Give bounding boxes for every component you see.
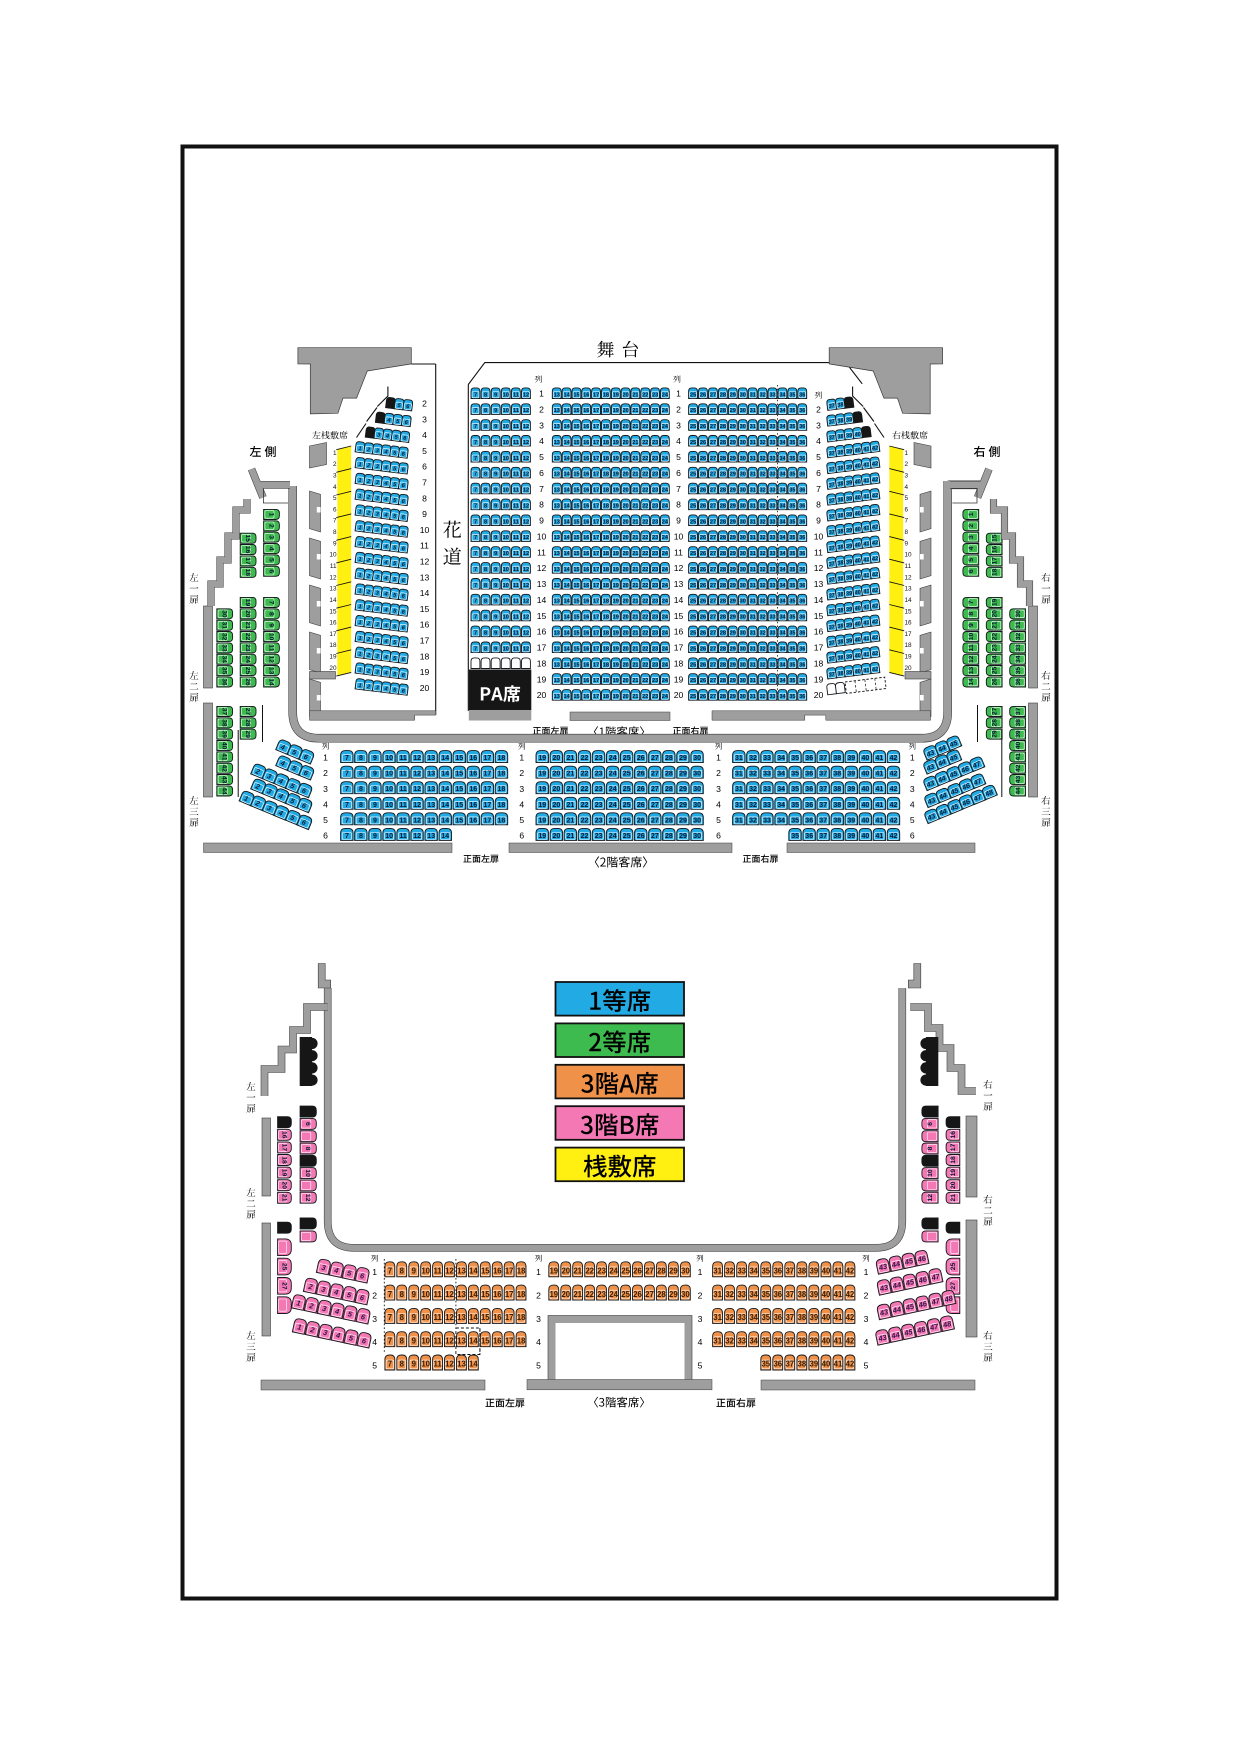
svg-text:20: 20 bbox=[622, 392, 628, 398]
svg-text:24: 24 bbox=[662, 631, 669, 637]
svg-text:17: 17 bbox=[905, 631, 913, 638]
svg-text:21: 21 bbox=[632, 408, 638, 414]
svg-text:25: 25 bbox=[690, 678, 696, 684]
svg-text:13: 13 bbox=[457, 1336, 466, 1345]
svg-text:30: 30 bbox=[740, 567, 746, 573]
svg-text:32: 32 bbox=[759, 678, 765, 684]
svg-text:34: 34 bbox=[779, 646, 786, 652]
svg-text:17: 17 bbox=[950, 1143, 957, 1151]
svg-text:12: 12 bbox=[420, 557, 430, 567]
svg-text:18: 18 bbox=[674, 659, 684, 669]
svg-text:37: 37 bbox=[785, 1336, 794, 1345]
svg-text:35: 35 bbox=[789, 631, 795, 637]
svg-text:9: 9 bbox=[412, 1313, 417, 1322]
svg-text:26: 26 bbox=[700, 408, 706, 414]
svg-text:41: 41 bbox=[876, 833, 884, 840]
svg-text:14: 14 bbox=[420, 588, 430, 598]
svg-text:16: 16 bbox=[583, 535, 589, 541]
svg-text:30: 30 bbox=[693, 755, 701, 762]
svg-text:22: 22 bbox=[585, 1290, 594, 1299]
svg-text:23: 23 bbox=[652, 567, 658, 573]
svg-text:28: 28 bbox=[720, 583, 726, 589]
svg-text:11: 11 bbox=[513, 488, 519, 494]
svg-text:37: 37 bbox=[785, 1313, 794, 1322]
svg-text:22: 22 bbox=[642, 567, 648, 573]
svg-text:29: 29 bbox=[991, 730, 998, 738]
svg-text:10: 10 bbox=[503, 551, 509, 557]
svg-text:22: 22 bbox=[244, 633, 251, 641]
svg-text:11: 11 bbox=[433, 1360, 442, 1369]
svg-text:27: 27 bbox=[710, 488, 716, 494]
svg-text:36: 36 bbox=[799, 535, 805, 541]
svg-text:13: 13 bbox=[457, 1313, 466, 1322]
svg-text:34: 34 bbox=[749, 1336, 758, 1345]
svg-text:13: 13 bbox=[674, 579, 684, 589]
svg-text:30: 30 bbox=[740, 519, 746, 525]
svg-text:26: 26 bbox=[700, 583, 706, 589]
svg-text:31: 31 bbox=[735, 771, 743, 778]
svg-text:11: 11 bbox=[513, 567, 519, 573]
svg-text:14: 14 bbox=[441, 817, 449, 824]
svg-text:5: 5 bbox=[905, 495, 909, 502]
svg-text:34: 34 bbox=[779, 408, 786, 414]
svg-text:19: 19 bbox=[538, 817, 546, 824]
svg-text:33: 33 bbox=[769, 583, 775, 589]
svg-text:31: 31 bbox=[750, 408, 756, 414]
svg-text:40: 40 bbox=[1015, 742, 1022, 750]
svg-text:26: 26 bbox=[633, 1267, 642, 1276]
svg-text:29: 29 bbox=[679, 817, 687, 824]
svg-text:3: 3 bbox=[905, 472, 909, 479]
svg-text:27: 27 bbox=[651, 771, 659, 778]
svg-text:7: 7 bbox=[345, 755, 349, 762]
svg-text:25: 25 bbox=[690, 551, 696, 557]
svg-text:36: 36 bbox=[799, 646, 805, 652]
svg-text:20: 20 bbox=[561, 1267, 570, 1276]
svg-text:26: 26 bbox=[637, 786, 645, 793]
svg-text:41: 41 bbox=[834, 1290, 843, 1299]
svg-text:28: 28 bbox=[720, 646, 726, 652]
svg-text:24: 24 bbox=[662, 472, 669, 478]
svg-text:27: 27 bbox=[710, 440, 716, 446]
svg-text:30: 30 bbox=[681, 1290, 690, 1299]
svg-text:36: 36 bbox=[805, 817, 813, 824]
svg-text:11: 11 bbox=[814, 547, 823, 557]
svg-text:12: 12 bbox=[537, 563, 547, 573]
svg-text:19: 19 bbox=[329, 654, 337, 661]
svg-text:11: 11 bbox=[399, 802, 407, 809]
svg-text:24: 24 bbox=[609, 802, 617, 809]
svg-text:35: 35 bbox=[789, 504, 795, 510]
svg-text:43: 43 bbox=[221, 776, 228, 784]
svg-text:16: 16 bbox=[583, 456, 589, 462]
svg-text:15: 15 bbox=[814, 611, 824, 621]
svg-text:34: 34 bbox=[1015, 655, 1022, 663]
svg-text:35: 35 bbox=[789, 472, 795, 478]
svg-text:17: 17 bbox=[593, 551, 599, 557]
svg-text:19: 19 bbox=[613, 599, 619, 605]
svg-text:25: 25 bbox=[690, 535, 696, 541]
svg-text:22: 22 bbox=[642, 456, 648, 462]
svg-text:9: 9 bbox=[412, 1267, 417, 1276]
svg-text:18: 18 bbox=[603, 440, 609, 446]
svg-text:14: 14 bbox=[469, 1267, 478, 1276]
svg-text:2: 2 bbox=[519, 768, 524, 778]
svg-text:15: 15 bbox=[481, 1290, 490, 1299]
svg-text:7: 7 bbox=[474, 519, 477, 525]
svg-text:28: 28 bbox=[665, 786, 673, 793]
svg-text:13: 13 bbox=[554, 504, 560, 510]
svg-text:18: 18 bbox=[420, 651, 430, 661]
svg-text:27: 27 bbox=[645, 1290, 654, 1299]
svg-text:2: 2 bbox=[968, 524, 975, 528]
svg-text:24: 24 bbox=[609, 755, 617, 762]
svg-text:8: 8 bbox=[968, 612, 975, 616]
svg-text:20: 20 bbox=[622, 694, 628, 700]
svg-text:37: 37 bbox=[785, 1360, 794, 1369]
svg-text:23: 23 bbox=[652, 551, 658, 557]
svg-text:12: 12 bbox=[523, 504, 529, 510]
svg-text:42: 42 bbox=[890, 802, 898, 809]
svg-text:20: 20 bbox=[622, 615, 628, 621]
svg-text:11: 11 bbox=[420, 541, 429, 551]
svg-text:18: 18 bbox=[517, 1336, 526, 1345]
svg-text:39: 39 bbox=[810, 1290, 819, 1299]
svg-text:36: 36 bbox=[799, 408, 805, 414]
svg-text:15: 15 bbox=[573, 472, 579, 478]
svg-text:32: 32 bbox=[759, 599, 765, 605]
svg-text:18: 18 bbox=[814, 659, 824, 669]
svg-text:30: 30 bbox=[740, 392, 746, 398]
svg-text:1: 1 bbox=[333, 450, 337, 457]
svg-text:30: 30 bbox=[740, 504, 746, 510]
svg-text:16: 16 bbox=[280, 1131, 287, 1139]
svg-text:28: 28 bbox=[665, 817, 673, 824]
svg-text:33: 33 bbox=[769, 678, 775, 684]
svg-text:35: 35 bbox=[791, 771, 799, 778]
svg-text:9: 9 bbox=[494, 519, 497, 525]
svg-text:44: 44 bbox=[221, 787, 228, 795]
svg-text:14: 14 bbox=[563, 631, 570, 637]
svg-text:38: 38 bbox=[798, 1290, 807, 1299]
svg-text:16: 16 bbox=[583, 678, 589, 684]
svg-text:2: 2 bbox=[422, 399, 427, 409]
svg-text:14: 14 bbox=[563, 504, 570, 510]
svg-text:10: 10 bbox=[503, 615, 509, 621]
svg-text:16: 16 bbox=[905, 620, 913, 627]
svg-text:6: 6 bbox=[676, 468, 681, 478]
svg-text:13: 13 bbox=[554, 408, 560, 414]
svg-text:33: 33 bbox=[763, 817, 771, 824]
svg-text:31: 31 bbox=[750, 678, 756, 684]
svg-text:25: 25 bbox=[690, 519, 696, 525]
svg-text:15: 15 bbox=[991, 534, 998, 542]
svg-text:21: 21 bbox=[632, 583, 638, 589]
svg-text:39: 39 bbox=[810, 1267, 819, 1276]
svg-text:14: 14 bbox=[674, 595, 684, 605]
svg-text:28: 28 bbox=[720, 472, 726, 478]
svg-text:18: 18 bbox=[537, 659, 547, 669]
svg-text:30: 30 bbox=[693, 771, 701, 778]
svg-text:22: 22 bbox=[581, 786, 589, 793]
svg-text:16: 16 bbox=[244, 546, 251, 554]
svg-text:17: 17 bbox=[593, 646, 599, 652]
svg-text:9: 9 bbox=[494, 631, 497, 637]
svg-text:36: 36 bbox=[805, 786, 813, 793]
svg-text:35: 35 bbox=[761, 1290, 770, 1299]
svg-text:14: 14 bbox=[563, 472, 570, 478]
svg-text:40: 40 bbox=[862, 786, 870, 793]
svg-text:13: 13 bbox=[554, 488, 560, 494]
svg-text:12: 12 bbox=[413, 786, 421, 793]
svg-text:41: 41 bbox=[862, 478, 870, 485]
svg-text:40: 40 bbox=[862, 817, 870, 824]
svg-text:30: 30 bbox=[740, 678, 746, 684]
svg-text:29: 29 bbox=[730, 488, 736, 494]
svg-text:28: 28 bbox=[720, 599, 726, 605]
svg-text:24: 24 bbox=[662, 567, 669, 573]
svg-text:8: 8 bbox=[359, 771, 363, 778]
svg-text:15: 15 bbox=[481, 1313, 490, 1322]
svg-text:17: 17 bbox=[593, 694, 599, 700]
svg-text:18: 18 bbox=[603, 631, 609, 637]
svg-text:7: 7 bbox=[345, 833, 349, 840]
svg-text:8: 8 bbox=[359, 755, 363, 762]
svg-text:4: 4 bbox=[372, 1337, 377, 1347]
svg-text:31: 31 bbox=[750, 615, 756, 621]
svg-text:24: 24 bbox=[662, 551, 669, 557]
svg-text:29: 29 bbox=[244, 730, 251, 738]
svg-text:13: 13 bbox=[554, 646, 560, 652]
svg-text:19: 19 bbox=[613, 646, 619, 652]
svg-text:16: 16 bbox=[493, 1290, 502, 1299]
svg-text:15: 15 bbox=[573, 440, 579, 446]
svg-text:30: 30 bbox=[740, 488, 746, 494]
svg-text:19: 19 bbox=[613, 519, 619, 525]
svg-text:9: 9 bbox=[968, 623, 975, 627]
svg-text:17: 17 bbox=[505, 1313, 514, 1322]
svg-text:8: 8 bbox=[267, 612, 274, 616]
svg-text:8: 8 bbox=[484, 504, 487, 510]
svg-text:17: 17 bbox=[593, 662, 599, 668]
svg-text:12: 12 bbox=[905, 574, 913, 581]
svg-text:25: 25 bbox=[690, 456, 696, 462]
svg-text:3: 3 bbox=[422, 414, 427, 424]
svg-text:35: 35 bbox=[789, 662, 795, 668]
svg-text:21: 21 bbox=[632, 519, 638, 525]
svg-text:32: 32 bbox=[759, 535, 765, 541]
svg-text:23: 23 bbox=[652, 615, 658, 621]
svg-text:15: 15 bbox=[455, 771, 463, 778]
svg-text:26: 26 bbox=[700, 519, 706, 525]
svg-text:35: 35 bbox=[221, 667, 228, 675]
svg-text:27: 27 bbox=[710, 694, 716, 700]
svg-text:4: 4 bbox=[716, 799, 721, 809]
svg-text:33: 33 bbox=[737, 1313, 746, 1322]
svg-text:6: 6 bbox=[323, 831, 328, 841]
svg-text:34: 34 bbox=[777, 786, 785, 793]
svg-text:35: 35 bbox=[789, 678, 795, 684]
svg-text:18: 18 bbox=[603, 504, 609, 510]
svg-text:15: 15 bbox=[573, 599, 579, 605]
svg-text:24: 24 bbox=[244, 656, 251, 664]
svg-text:22: 22 bbox=[642, 519, 648, 525]
svg-text:5: 5 bbox=[539, 452, 544, 462]
svg-text:20: 20 bbox=[991, 610, 998, 618]
svg-text:7: 7 bbox=[474, 424, 477, 430]
svg-text:24: 24 bbox=[662, 440, 669, 446]
svg-text:11: 11 bbox=[513, 646, 519, 652]
svg-text:41: 41 bbox=[862, 652, 870, 659]
svg-text:19: 19 bbox=[613, 504, 619, 510]
svg-text:1: 1 bbox=[267, 513, 274, 517]
svg-text:37: 37 bbox=[819, 786, 827, 793]
svg-text:25: 25 bbox=[623, 817, 631, 824]
svg-text:19: 19 bbox=[905, 654, 913, 661]
svg-text:23: 23 bbox=[595, 786, 603, 793]
svg-text:4: 4 bbox=[910, 799, 915, 809]
svg-text:41: 41 bbox=[1015, 753, 1022, 761]
svg-text:24: 24 bbox=[662, 456, 669, 462]
svg-text:28: 28 bbox=[720, 424, 726, 430]
svg-text:9: 9 bbox=[412, 1360, 417, 1369]
svg-text:28: 28 bbox=[720, 504, 726, 510]
svg-text:14: 14 bbox=[563, 567, 570, 573]
svg-text:24: 24 bbox=[662, 408, 669, 414]
svg-text:36: 36 bbox=[805, 771, 813, 778]
svg-text:8: 8 bbox=[484, 535, 487, 541]
svg-text:11: 11 bbox=[330, 563, 337, 570]
svg-text:10: 10 bbox=[421, 1313, 430, 1322]
svg-text:12: 12 bbox=[523, 424, 529, 430]
svg-text:7: 7 bbox=[474, 408, 477, 414]
svg-text:29: 29 bbox=[730, 392, 736, 398]
svg-text:16: 16 bbox=[583, 408, 589, 414]
svg-text:13: 13 bbox=[554, 615, 560, 621]
svg-text:35: 35 bbox=[789, 424, 795, 430]
svg-text:16: 16 bbox=[469, 817, 477, 824]
svg-text:12: 12 bbox=[523, 440, 529, 446]
svg-text:33: 33 bbox=[769, 662, 775, 668]
svg-text:25: 25 bbox=[690, 631, 696, 637]
svg-text:30: 30 bbox=[740, 583, 746, 589]
svg-text:12: 12 bbox=[523, 472, 529, 478]
svg-text:20: 20 bbox=[622, 535, 628, 541]
svg-text:15: 15 bbox=[420, 604, 430, 614]
svg-text:4: 4 bbox=[333, 484, 337, 491]
svg-text:14: 14 bbox=[469, 1290, 478, 1299]
svg-text:14: 14 bbox=[563, 551, 570, 557]
svg-text:35: 35 bbox=[789, 519, 795, 525]
svg-text:10: 10 bbox=[503, 646, 509, 652]
svg-text:5: 5 bbox=[676, 452, 681, 462]
svg-text:26: 26 bbox=[637, 833, 645, 840]
svg-text:32: 32 bbox=[759, 631, 765, 637]
svg-text:31: 31 bbox=[750, 392, 756, 398]
svg-text:14: 14 bbox=[563, 583, 570, 589]
svg-text:17: 17 bbox=[484, 802, 492, 809]
svg-text:2: 2 bbox=[864, 1291, 869, 1301]
svg-text:14: 14 bbox=[563, 535, 570, 541]
svg-text:18: 18 bbox=[603, 472, 609, 478]
svg-text:24: 24 bbox=[662, 646, 669, 652]
svg-text:28: 28 bbox=[720, 456, 726, 462]
svg-text:29: 29 bbox=[730, 408, 736, 414]
svg-text:30: 30 bbox=[740, 551, 746, 557]
svg-text:31: 31 bbox=[713, 1290, 722, 1299]
svg-text:25: 25 bbox=[690, 599, 696, 605]
svg-text:25: 25 bbox=[690, 646, 696, 652]
svg-text:28: 28 bbox=[720, 440, 726, 446]
svg-text:32: 32 bbox=[749, 817, 757, 824]
svg-text:11: 11 bbox=[513, 392, 519, 398]
svg-text:35: 35 bbox=[791, 755, 799, 762]
svg-text:34: 34 bbox=[777, 802, 785, 809]
svg-text:36: 36 bbox=[799, 488, 805, 494]
svg-text:18: 18 bbox=[603, 456, 609, 462]
svg-text:22: 22 bbox=[642, 551, 648, 557]
svg-text:7: 7 bbox=[267, 601, 274, 605]
svg-text:8: 8 bbox=[484, 408, 487, 414]
svg-text:33: 33 bbox=[769, 567, 775, 573]
svg-text:27: 27 bbox=[651, 833, 659, 840]
svg-text:41: 41 bbox=[862, 557, 870, 564]
svg-text:12: 12 bbox=[304, 1194, 311, 1202]
svg-text:22: 22 bbox=[642, 408, 648, 414]
svg-text:33: 33 bbox=[769, 504, 775, 510]
svg-text:10: 10 bbox=[385, 802, 393, 809]
svg-text:15: 15 bbox=[573, 662, 579, 668]
svg-text:35: 35 bbox=[789, 567, 795, 573]
svg-text:42: 42 bbox=[890, 833, 898, 840]
svg-text:20: 20 bbox=[905, 665, 913, 672]
svg-text:20: 20 bbox=[280, 1181, 287, 1189]
svg-text:23: 23 bbox=[597, 1290, 606, 1299]
svg-text:17: 17 bbox=[420, 636, 430, 646]
svg-text:9: 9 bbox=[494, 567, 497, 573]
svg-text:21: 21 bbox=[632, 694, 638, 700]
svg-text:30: 30 bbox=[740, 631, 746, 637]
svg-text:7: 7 bbox=[474, 472, 477, 478]
svg-text:1: 1 bbox=[323, 753, 328, 763]
svg-text:12: 12 bbox=[413, 771, 421, 778]
svg-text:25: 25 bbox=[623, 802, 631, 809]
svg-text:8: 8 bbox=[484, 646, 487, 652]
svg-text:8: 8 bbox=[676, 500, 681, 510]
svg-text:35: 35 bbox=[789, 599, 795, 605]
svg-text:8: 8 bbox=[359, 802, 363, 809]
svg-text:35: 35 bbox=[791, 802, 799, 809]
svg-text:19: 19 bbox=[613, 615, 619, 621]
svg-text:34: 34 bbox=[221, 656, 228, 664]
svg-text:23: 23 bbox=[652, 535, 658, 541]
svg-text:10: 10 bbox=[968, 633, 975, 641]
svg-text:23: 23 bbox=[652, 472, 658, 478]
svg-text:13: 13 bbox=[420, 572, 430, 582]
svg-text:13: 13 bbox=[554, 599, 560, 605]
svg-text:4: 4 bbox=[676, 436, 681, 446]
svg-text:27: 27 bbox=[710, 646, 716, 652]
svg-text:26: 26 bbox=[700, 567, 706, 573]
svg-text:27: 27 bbox=[280, 1282, 287, 1290]
svg-text:2: 2 bbox=[698, 1291, 703, 1301]
svg-text:1: 1 bbox=[910, 753, 915, 763]
svg-text:25: 25 bbox=[690, 694, 696, 700]
svg-text:14: 14 bbox=[267, 678, 274, 686]
svg-text:19: 19 bbox=[613, 694, 619, 700]
svg-text:21: 21 bbox=[632, 488, 638, 494]
svg-text:38: 38 bbox=[1015, 719, 1022, 727]
